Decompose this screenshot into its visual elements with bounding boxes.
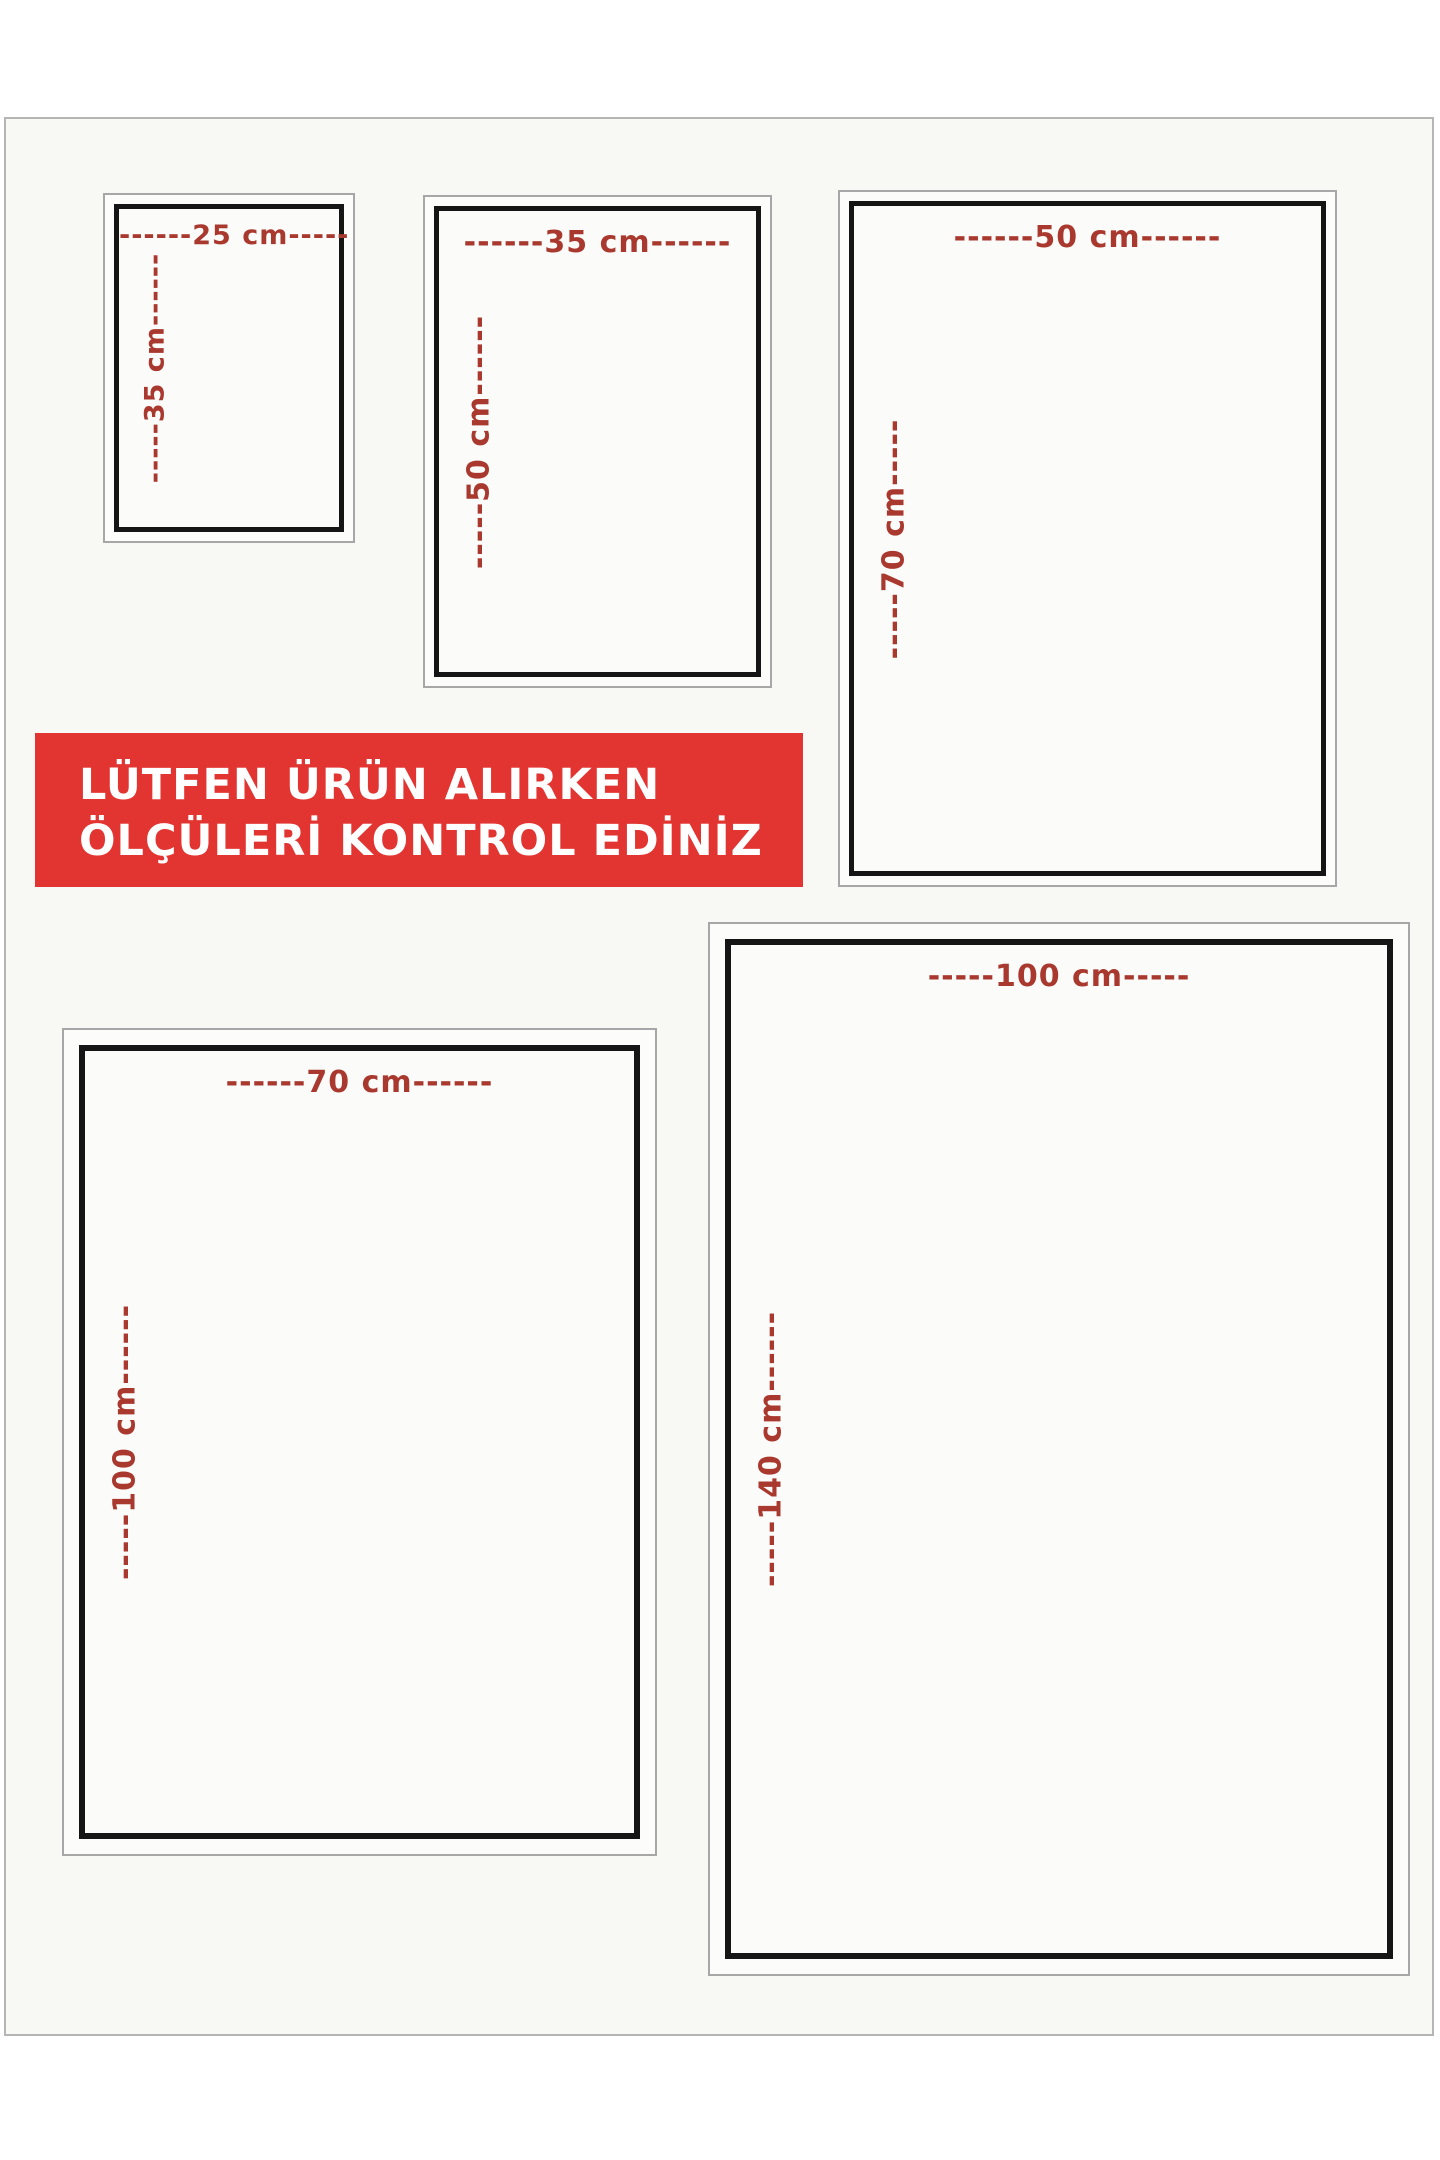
height-dimension-label: -----100 cm------	[108, 1304, 143, 1580]
size-box-35x50-frame: ------35 cm------ -----50 cm------	[434, 206, 761, 677]
size-chart-canvas: ------25 cm----- -----35 cm------ ------…	[4, 117, 1434, 2036]
width-dimension-label: -----100 cm-----	[731, 959, 1387, 994]
height-dimension-label: -----70 cm-----	[877, 418, 912, 659]
width-dimension-label: ------50 cm------	[854, 220, 1321, 255]
size-box-100x140-frame: -----100 cm----- -----140 cm------	[725, 939, 1393, 1959]
size-box-70x100-frame: ------70 cm------ -----100 cm------	[79, 1045, 640, 1839]
width-dimension-label: ------25 cm-----	[119, 220, 339, 251]
size-chart-page: ------25 cm----- -----35 cm------ ------…	[0, 0, 1440, 2160]
width-dimension-label: ------35 cm------	[439, 225, 756, 260]
size-box-25x35-frame: ------25 cm----- -----35 cm------	[114, 204, 344, 532]
warning-banner-line2: ÖLÇÜLERİ KONTROL EDİNİZ	[79, 813, 793, 869]
warning-banner: LÜTFEN ÜRÜN ALIRKEN ÖLÇÜLERİ KONTROL EDİ…	[35, 733, 803, 887]
height-dimension-label: -----50 cm------	[462, 314, 497, 568]
size-box-70x100: ------70 cm------ -----100 cm------	[62, 1028, 657, 1856]
size-box-25x35: ------25 cm----- -----35 cm------	[103, 193, 355, 543]
size-box-35x50: ------35 cm------ -----50 cm------	[423, 195, 772, 688]
height-dimension-label: -----140 cm------	[754, 1311, 789, 1587]
size-box-100x140: -----100 cm----- -----140 cm------	[708, 922, 1410, 1976]
height-dimension-label: -----35 cm------	[140, 253, 171, 483]
width-dimension-label: ------70 cm------	[85, 1065, 634, 1100]
size-box-50x70-frame: ------50 cm------ -----70 cm-----	[849, 201, 1326, 876]
size-box-50x70: ------50 cm------ -----70 cm-----	[838, 190, 1337, 887]
warning-banner-line1: LÜTFEN ÜRÜN ALIRKEN	[79, 757, 793, 813]
